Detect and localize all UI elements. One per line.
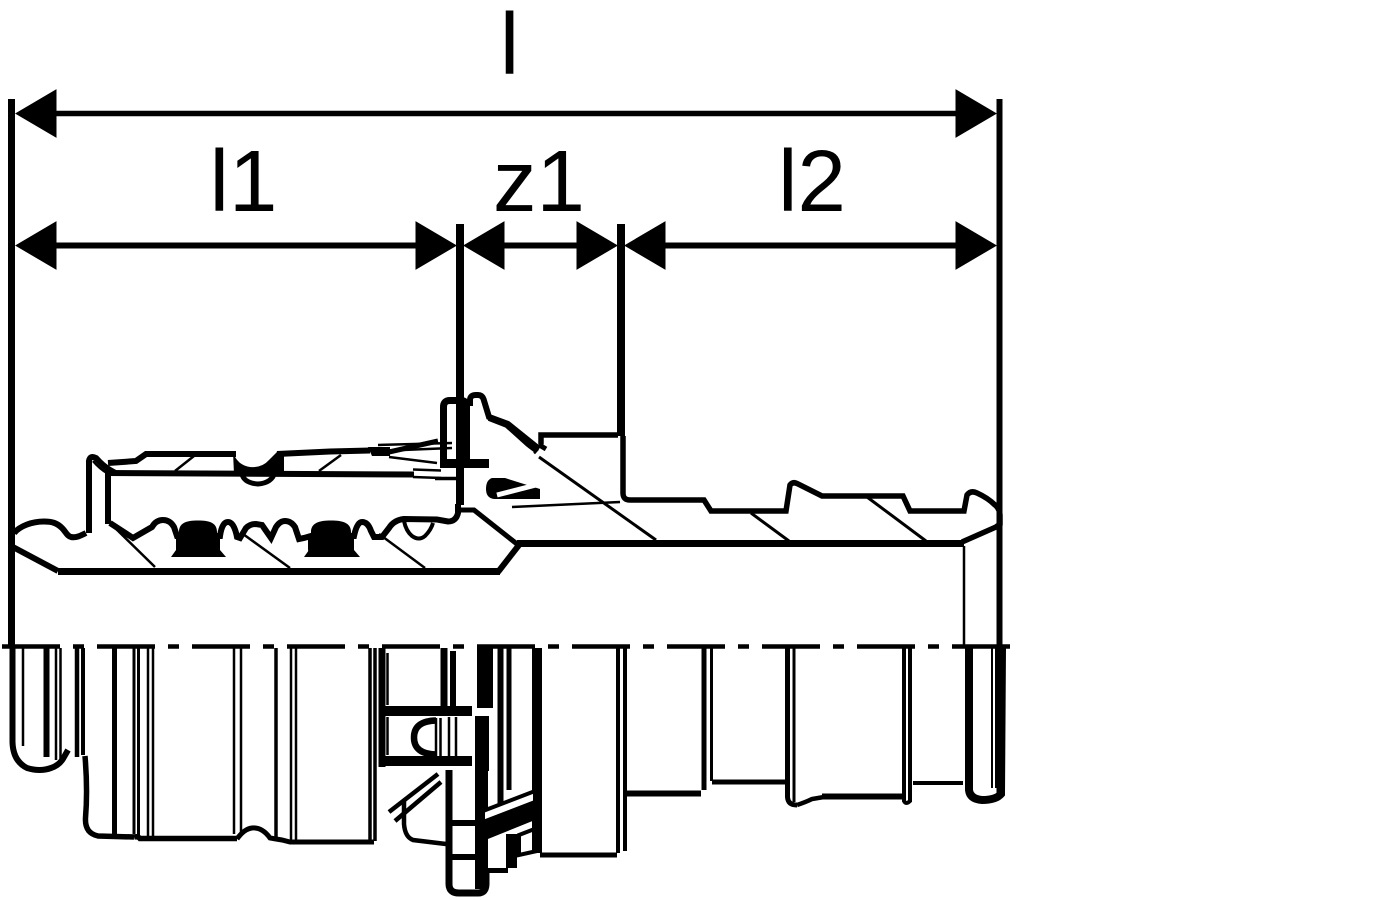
svg-text:l: l xyxy=(500,0,519,93)
svg-text:l1: l1 xyxy=(210,133,278,230)
svg-text:z1: z1 xyxy=(493,133,585,230)
svg-text:l2: l2 xyxy=(778,133,846,230)
